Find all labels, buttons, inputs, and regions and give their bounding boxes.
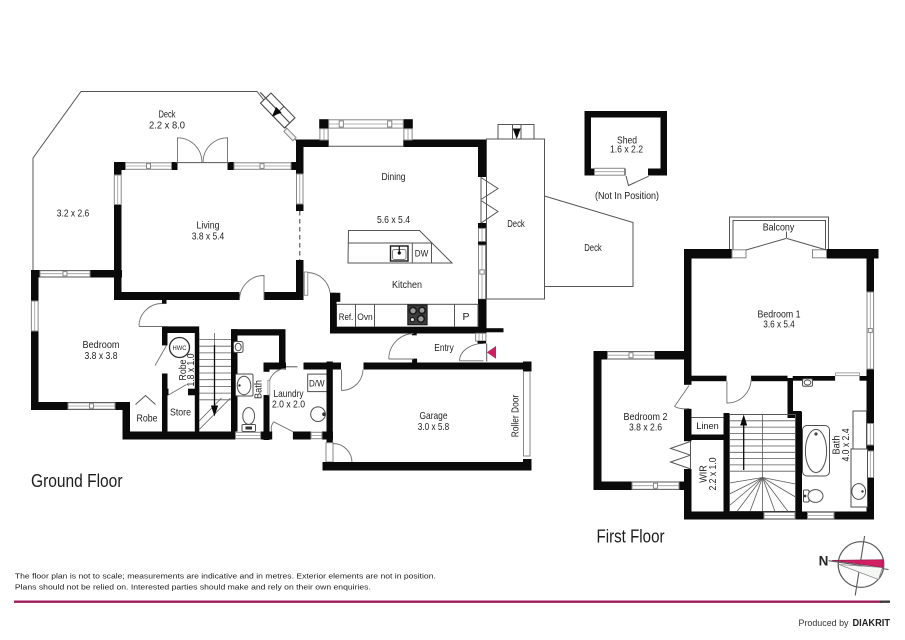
- svg-text:Kitchen: Kitchen: [392, 279, 422, 291]
- svg-text:2.2 x 1.0: 2.2 x 1.0: [707, 457, 719, 490]
- svg-text:DIAKRIT: DIAKRIT: [853, 617, 891, 629]
- svg-text:2.0 x 2.0: 2.0 x 2.0: [272, 398, 305, 410]
- svg-text:Store: Store: [170, 407, 191, 419]
- svg-text:Produced by: Produced by: [799, 618, 849, 628]
- svg-text:Roller Door: Roller Door: [510, 394, 522, 437]
- svg-text:Plans should not be relied on.: Plans should not be relied on. Intereste…: [15, 582, 371, 591]
- svg-text:Robe: Robe: [137, 413, 158, 425]
- svg-text:Deck: Deck: [584, 242, 602, 254]
- svg-text:3.6 x 5.4: 3.6 x 5.4: [763, 319, 795, 331]
- svg-text:(Not In Position): (Not In Position): [595, 190, 659, 202]
- svg-text:Bath: Bath: [253, 380, 265, 399]
- svg-text:Deck: Deck: [507, 218, 525, 230]
- svg-text:3.0 x 5.8: 3.0 x 5.8: [418, 421, 450, 433]
- svg-text:Entry: Entry: [434, 342, 454, 354]
- svg-text:The floor plan is not to scale: The floor plan is not to scale; measurem…: [15, 571, 436, 580]
- svg-text:1.6 x 2.2: 1.6 x 2.2: [610, 144, 643, 156]
- svg-text:3.8 x 3.8: 3.8 x 3.8: [85, 350, 118, 362]
- svg-text:D/W: D/W: [309, 379, 325, 390]
- svg-text:Ground Floor: Ground Floor: [31, 471, 123, 491]
- svg-text:Balcony: Balcony: [763, 221, 795, 233]
- svg-text:First Floor: First Floor: [597, 526, 665, 546]
- svg-text:3.8 x 2.6: 3.8 x 2.6: [629, 422, 662, 434]
- svg-text:5.6 x 5.4: 5.6 x 5.4: [377, 214, 410, 226]
- svg-text:4.0 x 2.4: 4.0 x 2.4: [840, 428, 852, 461]
- svg-text:N: N: [819, 554, 829, 569]
- svg-text:3.8 x 5.4: 3.8 x 5.4: [192, 231, 225, 243]
- svg-text:Dining: Dining: [382, 171, 406, 183]
- svg-text:3.2 x 2.6: 3.2 x 2.6: [57, 208, 90, 220]
- svg-text:DW: DW: [415, 249, 429, 260]
- svg-text:P: P: [462, 311, 469, 323]
- svg-text:Ref.: Ref.: [339, 312, 354, 323]
- svg-text:HWC: HWC: [173, 345, 187, 352]
- svg-text:2.2 x 8.0: 2.2 x 8.0: [149, 120, 185, 132]
- svg-text:Ovn: Ovn: [357, 312, 373, 323]
- svg-text:Linen: Linen: [696, 421, 719, 432]
